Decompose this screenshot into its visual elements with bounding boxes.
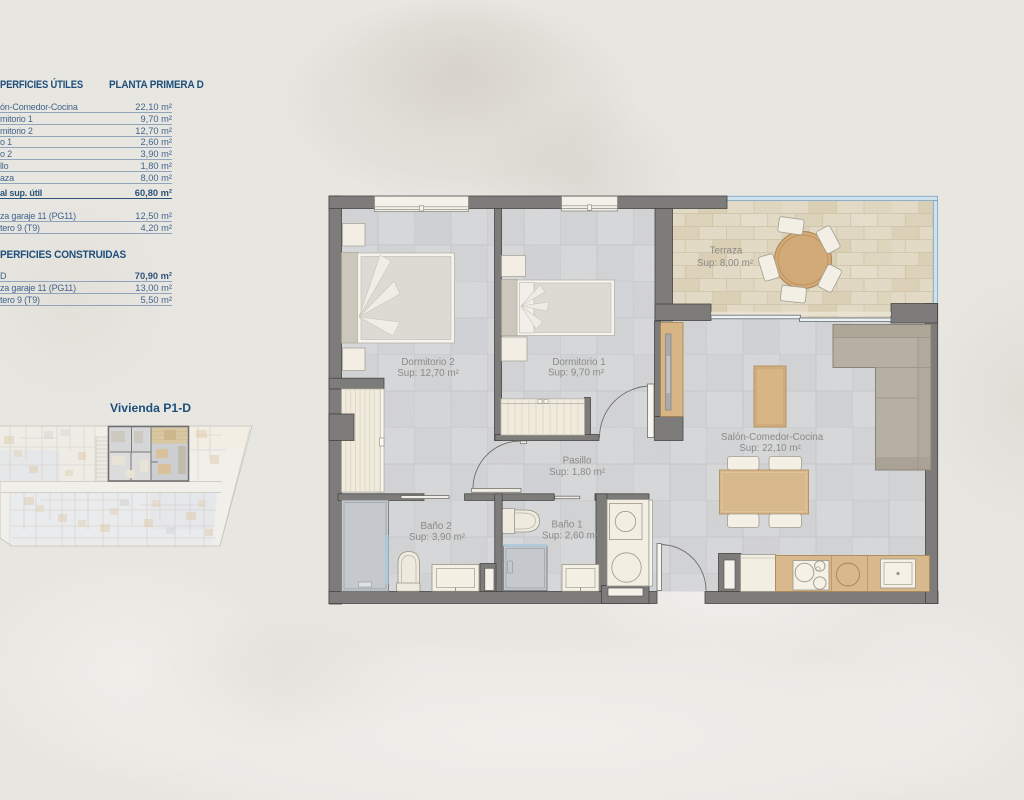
svg-text:Sup: 2,60 m²: Sup: 2,60 m²	[542, 531, 599, 542]
svg-text:Baño 1: Baño 1	[551, 520, 582, 531]
svg-text:Sup: 3,90 m²: Sup: 3,90 m²	[409, 532, 466, 543]
svg-text:Terraza: Terraza	[710, 246, 743, 257]
svg-text:Sup: 8,00 m²: Sup: 8,00 m²	[697, 258, 754, 269]
svg-text:Pasillo: Pasillo	[563, 456, 592, 467]
svg-text:Sup: 22,10 m²: Sup: 22,10 m²	[739, 443, 801, 454]
svg-text:Baño 2: Baño 2	[420, 521, 451, 532]
svg-text:Sup: 1,80 m²: Sup: 1,80 m²	[549, 467, 606, 478]
svg-text:Salón-Comedor-Cocina: Salón-Comedor-Cocina	[721, 432, 824, 443]
svg-text:Dormitorio 2: Dormitorio 2	[401, 357, 454, 368]
svg-text:Sup: 9,70 m²: Sup: 9,70 m²	[548, 367, 605, 378]
svg-text:Sup: 12,70 m²: Sup: 12,70 m²	[397, 368, 459, 379]
svg-text:Dormitorio 1: Dormitorio 1	[552, 357, 605, 368]
